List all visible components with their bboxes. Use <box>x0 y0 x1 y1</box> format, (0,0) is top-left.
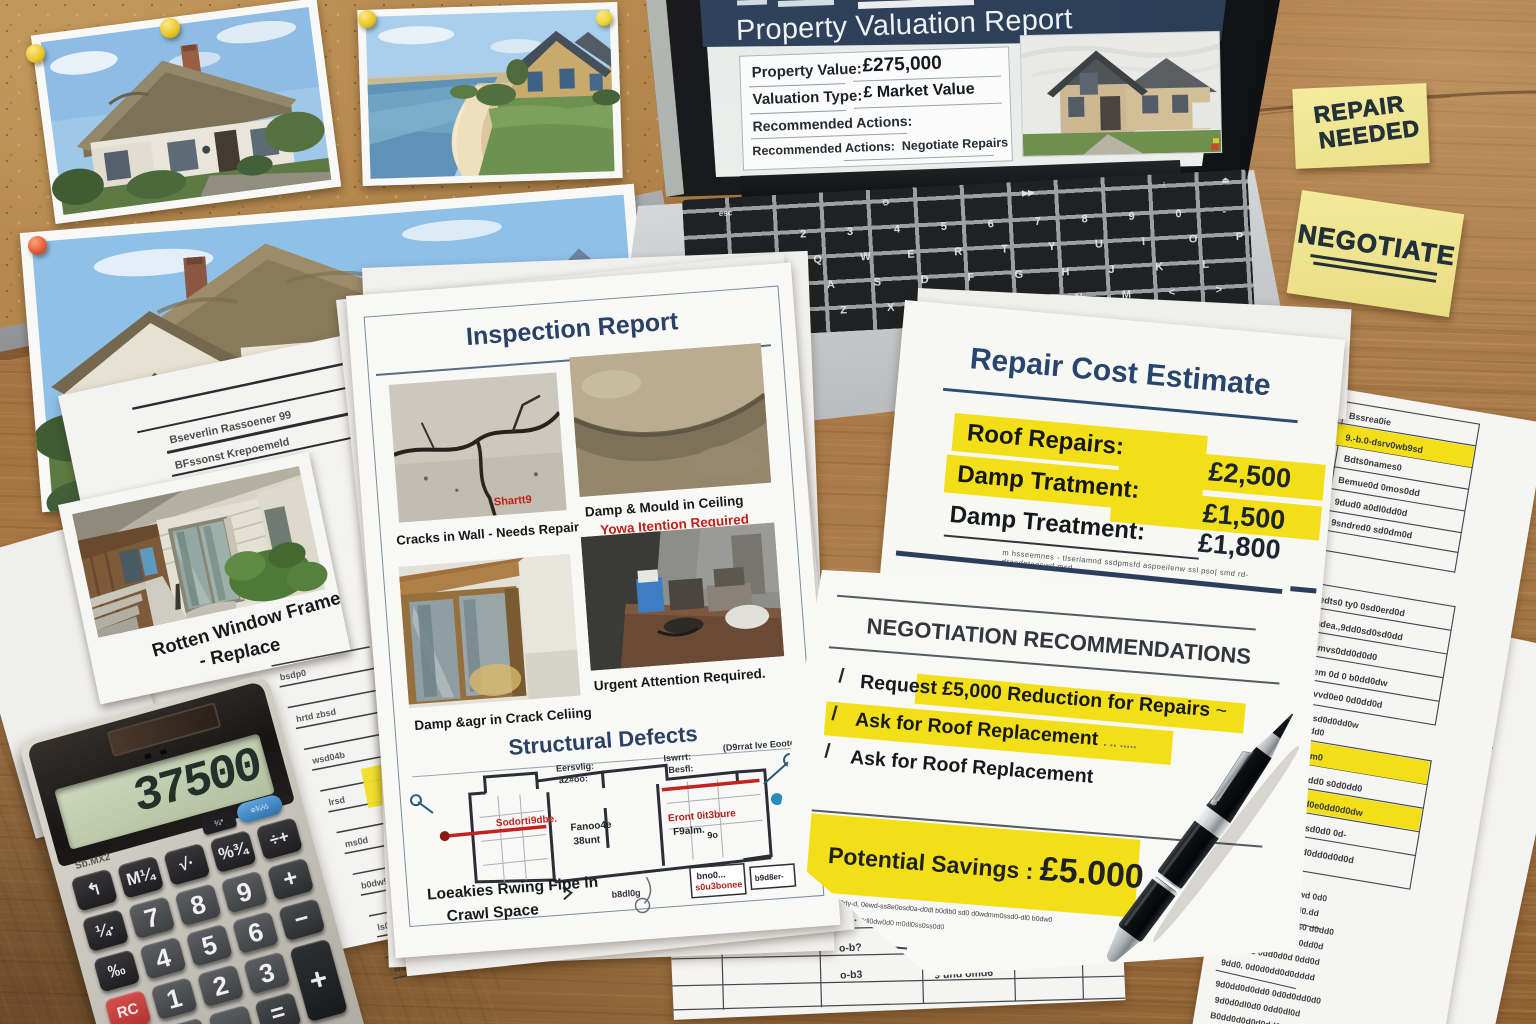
svg-text:F: F <box>967 271 975 283</box>
svg-text:Besfl:: Besfl: <box>668 763 694 775</box>
svg-text:I: I <box>1142 236 1146 248</box>
svg-text:S: S <box>873 276 881 288</box>
svg-text:>: > <box>1215 284 1222 296</box>
svg-text:E: E <box>907 249 915 261</box>
svg-text:U: U <box>1095 238 1104 250</box>
svg-text:bsdp0: bsdp0 <box>279 668 307 683</box>
svg-text:Z: Z <box>840 304 848 316</box>
svg-text:T: T <box>1001 243 1009 255</box>
svg-text:8: 8 <box>1081 213 1088 225</box>
svg-text:Y: Y <box>1048 241 1057 253</box>
svg-text:9: 9 <box>1128 211 1135 223</box>
svg-text:Bssrea0ie: Bssrea0ie <box>1348 411 1392 428</box>
svg-text:4: 4 <box>894 223 902 235</box>
svg-text:Iswrrt:: Iswrrt: <box>663 751 691 763</box>
svg-text:A: A <box>827 279 836 291</box>
svg-text:<: < <box>1168 286 1175 298</box>
svg-text:F9alm.: F9alm. <box>673 825 706 838</box>
svg-text:⛭: ⛭ <box>882 198 889 207</box>
svg-text:X: X <box>887 302 896 314</box>
svg-text:o-b?: o-b? <box>839 942 862 955</box>
svg-text:H: H <box>1061 266 1070 278</box>
svg-text:5: 5 <box>941 221 948 233</box>
svg-text:Sodorti9dbe.: Sodorti9dbe. <box>496 814 558 830</box>
svg-text:0: 0 <box>1175 208 1182 220</box>
svg-text:6: 6 <box>987 218 994 230</box>
svg-text:9o: 9o <box>707 830 719 841</box>
svg-text:-: - <box>1222 206 1227 218</box>
svg-text:Q: Q <box>813 254 823 266</box>
svg-text:♪: ♪ <box>1162 179 1166 188</box>
svg-text:W: W <box>860 251 872 264</box>
svg-text:Eersvlig:: Eersvlig: <box>556 761 595 774</box>
svg-text:lrsd: lrsd <box>328 795 346 808</box>
svg-text:9sndred0 sd0dm0d: 9sndred0 sd0dm0d <box>1330 517 1413 540</box>
svg-text:a2#oo:: a2#oo: <box>559 773 589 785</box>
svg-text:G: G <box>1014 269 1023 281</box>
svg-text:O: O <box>1189 233 1199 245</box>
svg-text:K: K <box>1155 261 1164 273</box>
svg-text:3: 3 <box>847 226 854 238</box>
svg-text:R: R <box>954 246 963 258</box>
svg-text:⏏: ⏏ <box>1221 175 1229 184</box>
svg-text:Bemue0d 0mos0dd: Bemue0d 0mos0dd <box>1338 475 1421 498</box>
svg-text:38unt: 38unt <box>573 834 601 847</box>
svg-text:ms0d: ms0d <box>344 835 369 849</box>
svg-text:esc: esc <box>719 208 733 218</box>
svg-text:D: D <box>920 274 929 286</box>
svg-text:L: L <box>1202 259 1210 271</box>
svg-text:J: J <box>1108 264 1115 276</box>
svg-text:wsd04b: wsd04b <box>310 750 346 766</box>
svg-text:Eront 0it3bure: Eront 0it3bure <box>668 808 737 824</box>
svg-text:P: P <box>1235 231 1243 243</box>
svg-text:▶▶: ▶▶ <box>1021 188 1036 198</box>
svg-text:2: 2 <box>800 228 807 240</box>
svg-text:o-b3: o-b3 <box>840 969 863 982</box>
svg-text:7: 7 <box>1034 216 1041 228</box>
